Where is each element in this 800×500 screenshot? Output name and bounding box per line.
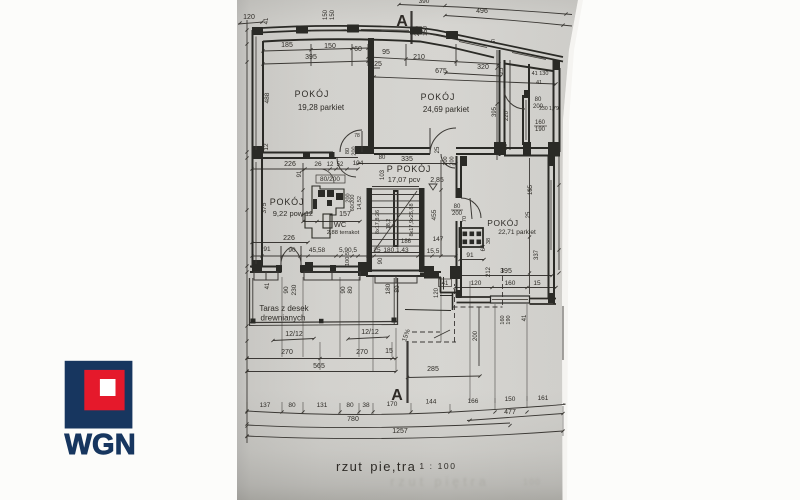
svg-text:226: 226 <box>284 161 296 168</box>
svg-text:P POKÓJ: P POKÓJ <box>387 164 431 174</box>
svg-text:rzut piętra: rzut piętra <box>390 475 490 489</box>
svg-text:185: 185 <box>281 42 293 49</box>
svg-text:52: 52 <box>337 162 344 168</box>
svg-text:496: 496 <box>476 8 488 15</box>
svg-text:160: 160 <box>535 120 546 126</box>
svg-text:212: 212 <box>486 266 492 277</box>
svg-text:150: 150 <box>324 43 336 50</box>
svg-text:91: 91 <box>263 246 271 253</box>
svg-text:90: 90 <box>283 286 290 294</box>
svg-text:131: 131 <box>317 402 328 409</box>
svg-text:220: 220 <box>504 110 510 121</box>
svg-text:rzutpie,tra: rzutpie,tra <box>336 459 416 474</box>
svg-text:41: 41 <box>442 281 449 287</box>
svg-text:200: 200 <box>450 156 456 165</box>
svg-text:1257: 1257 <box>392 428 408 435</box>
svg-text:POKÓJ: POKÓJ <box>295 89 330 99</box>
svg-text:25: 25 <box>373 247 381 254</box>
svg-text:200: 200 <box>352 146 358 155</box>
svg-text:78: 78 <box>354 133 360 139</box>
svg-text:90: 90 <box>378 257 384 264</box>
svg-text:150: 150 <box>423 25 429 36</box>
svg-text:150: 150 <box>323 9 329 20</box>
svg-text:185: 185 <box>528 184 534 195</box>
svg-text:161: 161 <box>538 395 549 402</box>
svg-text:70: 70 <box>462 216 468 222</box>
svg-text:12: 12 <box>305 211 313 218</box>
svg-text:1 : 100: 1 : 100 <box>419 461 456 471</box>
svg-text:2,85: 2,85 <box>430 177 444 184</box>
svg-text:186: 186 <box>401 239 412 245</box>
svg-text:41: 41 <box>536 80 542 86</box>
svg-text:45,58: 45,58 <box>309 247 326 254</box>
svg-text:120: 120 <box>434 287 440 298</box>
svg-text:25: 25 <box>499 67 505 74</box>
svg-text:64: 64 <box>481 244 487 251</box>
svg-text:170: 170 <box>387 401 398 408</box>
svg-text:80: 80 <box>535 97 542 103</box>
svg-text:144: 144 <box>426 399 437 406</box>
svg-text:477: 477 <box>504 409 516 416</box>
svg-text:270: 270 <box>356 349 368 356</box>
svg-text:90: 90 <box>288 247 296 254</box>
svg-text:41: 41 <box>265 282 271 289</box>
svg-text:780: 780 <box>347 416 359 423</box>
svg-text:488: 488 <box>264 92 271 103</box>
svg-text:19,28 parkiet: 19,28 parkiet <box>298 103 345 112</box>
svg-text:395: 395 <box>305 54 317 61</box>
svg-text:166: 166 <box>468 398 479 405</box>
svg-text:90: 90 <box>340 286 347 294</box>
svg-text:A: A <box>396 13 408 30</box>
svg-text:41: 41 <box>264 17 270 24</box>
svg-text:180,1,43: 180,1,43 <box>383 247 409 254</box>
svg-text:80: 80 <box>394 285 401 293</box>
svg-text:190: 190 <box>506 315 512 324</box>
svg-text:25: 25 <box>374 61 382 68</box>
svg-text:150: 150 <box>505 396 516 403</box>
svg-text:91: 91 <box>466 252 474 259</box>
svg-text:104: 104 <box>353 160 364 167</box>
svg-text:100: 100 <box>523 477 541 487</box>
svg-text:210: 210 <box>415 25 421 36</box>
svg-text:8x17,8:26: 8x17,8:26 <box>375 210 381 234</box>
svg-text:120: 120 <box>471 280 482 287</box>
svg-text:80: 80 <box>379 155 386 161</box>
svg-text:22,71 parkiet: 22,71 parkiet <box>498 229 536 236</box>
svg-text:41: 41 <box>522 314 528 321</box>
svg-text:455: 455 <box>431 209 438 220</box>
svg-text:38: 38 <box>486 238 492 244</box>
svg-text:25: 25 <box>435 146 441 153</box>
svg-text:POKÓJ: POKÓJ <box>487 218 518 228</box>
svg-text:15: 15 <box>385 348 393 355</box>
svg-text:26: 26 <box>314 161 322 168</box>
svg-text:90: 90 <box>339 194 345 200</box>
svg-text:WGN: WGN <box>64 429 135 461</box>
svg-text:Taras z desek: Taras z desek <box>259 304 309 313</box>
svg-text:POKÓJ: POKÓJ <box>270 197 305 207</box>
svg-text:147: 147 <box>433 236 444 243</box>
svg-text:395: 395 <box>500 268 512 275</box>
svg-text:375: 375 <box>261 202 268 213</box>
svg-text:12/12: 12/12 <box>285 331 303 338</box>
svg-text:41 130: 41 130 <box>532 71 549 77</box>
svg-text:80: 80 <box>288 402 296 409</box>
svg-text:80: 80 <box>346 402 354 409</box>
svg-text:100,5: 100,5 <box>345 252 351 266</box>
svg-text:90: 90 <box>503 143 509 150</box>
svg-text:335: 335 <box>401 156 413 163</box>
svg-text:80: 80 <box>454 204 461 210</box>
svg-text:230: 230 <box>291 284 298 295</box>
svg-text:395: 395 <box>492 106 498 117</box>
svg-text:drewnianych: drewnianych <box>261 314 306 323</box>
svg-text:17,07 pcv: 17,07 pcv <box>388 175 421 184</box>
svg-text:8x17,9x26,88: 8x17,9x26,88 <box>409 203 415 236</box>
svg-text:190: 190 <box>535 127 546 133</box>
svg-text:270: 270 <box>281 349 293 356</box>
svg-text:675: 675 <box>435 68 447 75</box>
svg-text:24,69 parkiet: 24,69 parkiet <box>423 105 470 114</box>
svg-text:15,5: 15,5 <box>427 248 440 255</box>
svg-text:91: 91 <box>297 170 303 177</box>
svg-text:200: 200 <box>346 193 352 202</box>
svg-text:12: 12 <box>263 143 270 151</box>
svg-text:15: 15 <box>533 280 541 287</box>
svg-text:60: 60 <box>354 46 362 53</box>
svg-text:160: 160 <box>505 280 516 287</box>
svg-text:230 1,79: 230 1,79 <box>539 106 559 112</box>
svg-text:200: 200 <box>473 330 479 341</box>
svg-text:12/12: 12/12 <box>361 329 379 336</box>
svg-text:390: 390 <box>419 0 430 5</box>
svg-text:80: 80 <box>345 148 351 154</box>
svg-text:565: 565 <box>313 363 325 370</box>
svg-text:337: 337 <box>534 249 540 260</box>
svg-text:120: 120 <box>243 14 255 21</box>
svg-text:226: 226 <box>283 235 295 242</box>
svg-text:18,2: 18,2 <box>386 219 392 230</box>
svg-text:137: 137 <box>260 402 271 409</box>
svg-text:2,88 terrakot: 2,88 terrakot <box>327 230 360 236</box>
svg-text:WC: WC <box>334 220 347 229</box>
svg-text:285: 285 <box>427 366 439 373</box>
svg-text:14,52: 14,52 <box>357 196 363 210</box>
svg-text:POKÓJ: POKÓJ <box>421 92 456 102</box>
svg-text:210: 210 <box>413 54 425 61</box>
svg-text:12: 12 <box>327 162 334 168</box>
svg-text:G: G <box>491 39 495 45</box>
svg-text:95: 95 <box>382 49 390 56</box>
svg-text:150: 150 <box>330 9 336 20</box>
svg-text:180: 180 <box>385 283 392 294</box>
svg-text:38: 38 <box>362 402 370 409</box>
svg-text:80: 80 <box>347 286 354 294</box>
svg-text:9,22 pow: 9,22 pow <box>273 209 304 218</box>
svg-text:25: 25 <box>526 211 532 218</box>
svg-text:320: 320 <box>477 64 489 71</box>
svg-text:80/200: 80/200 <box>320 176 340 183</box>
svg-text:103: 103 <box>380 169 386 180</box>
svg-text:100: 100 <box>443 156 449 165</box>
